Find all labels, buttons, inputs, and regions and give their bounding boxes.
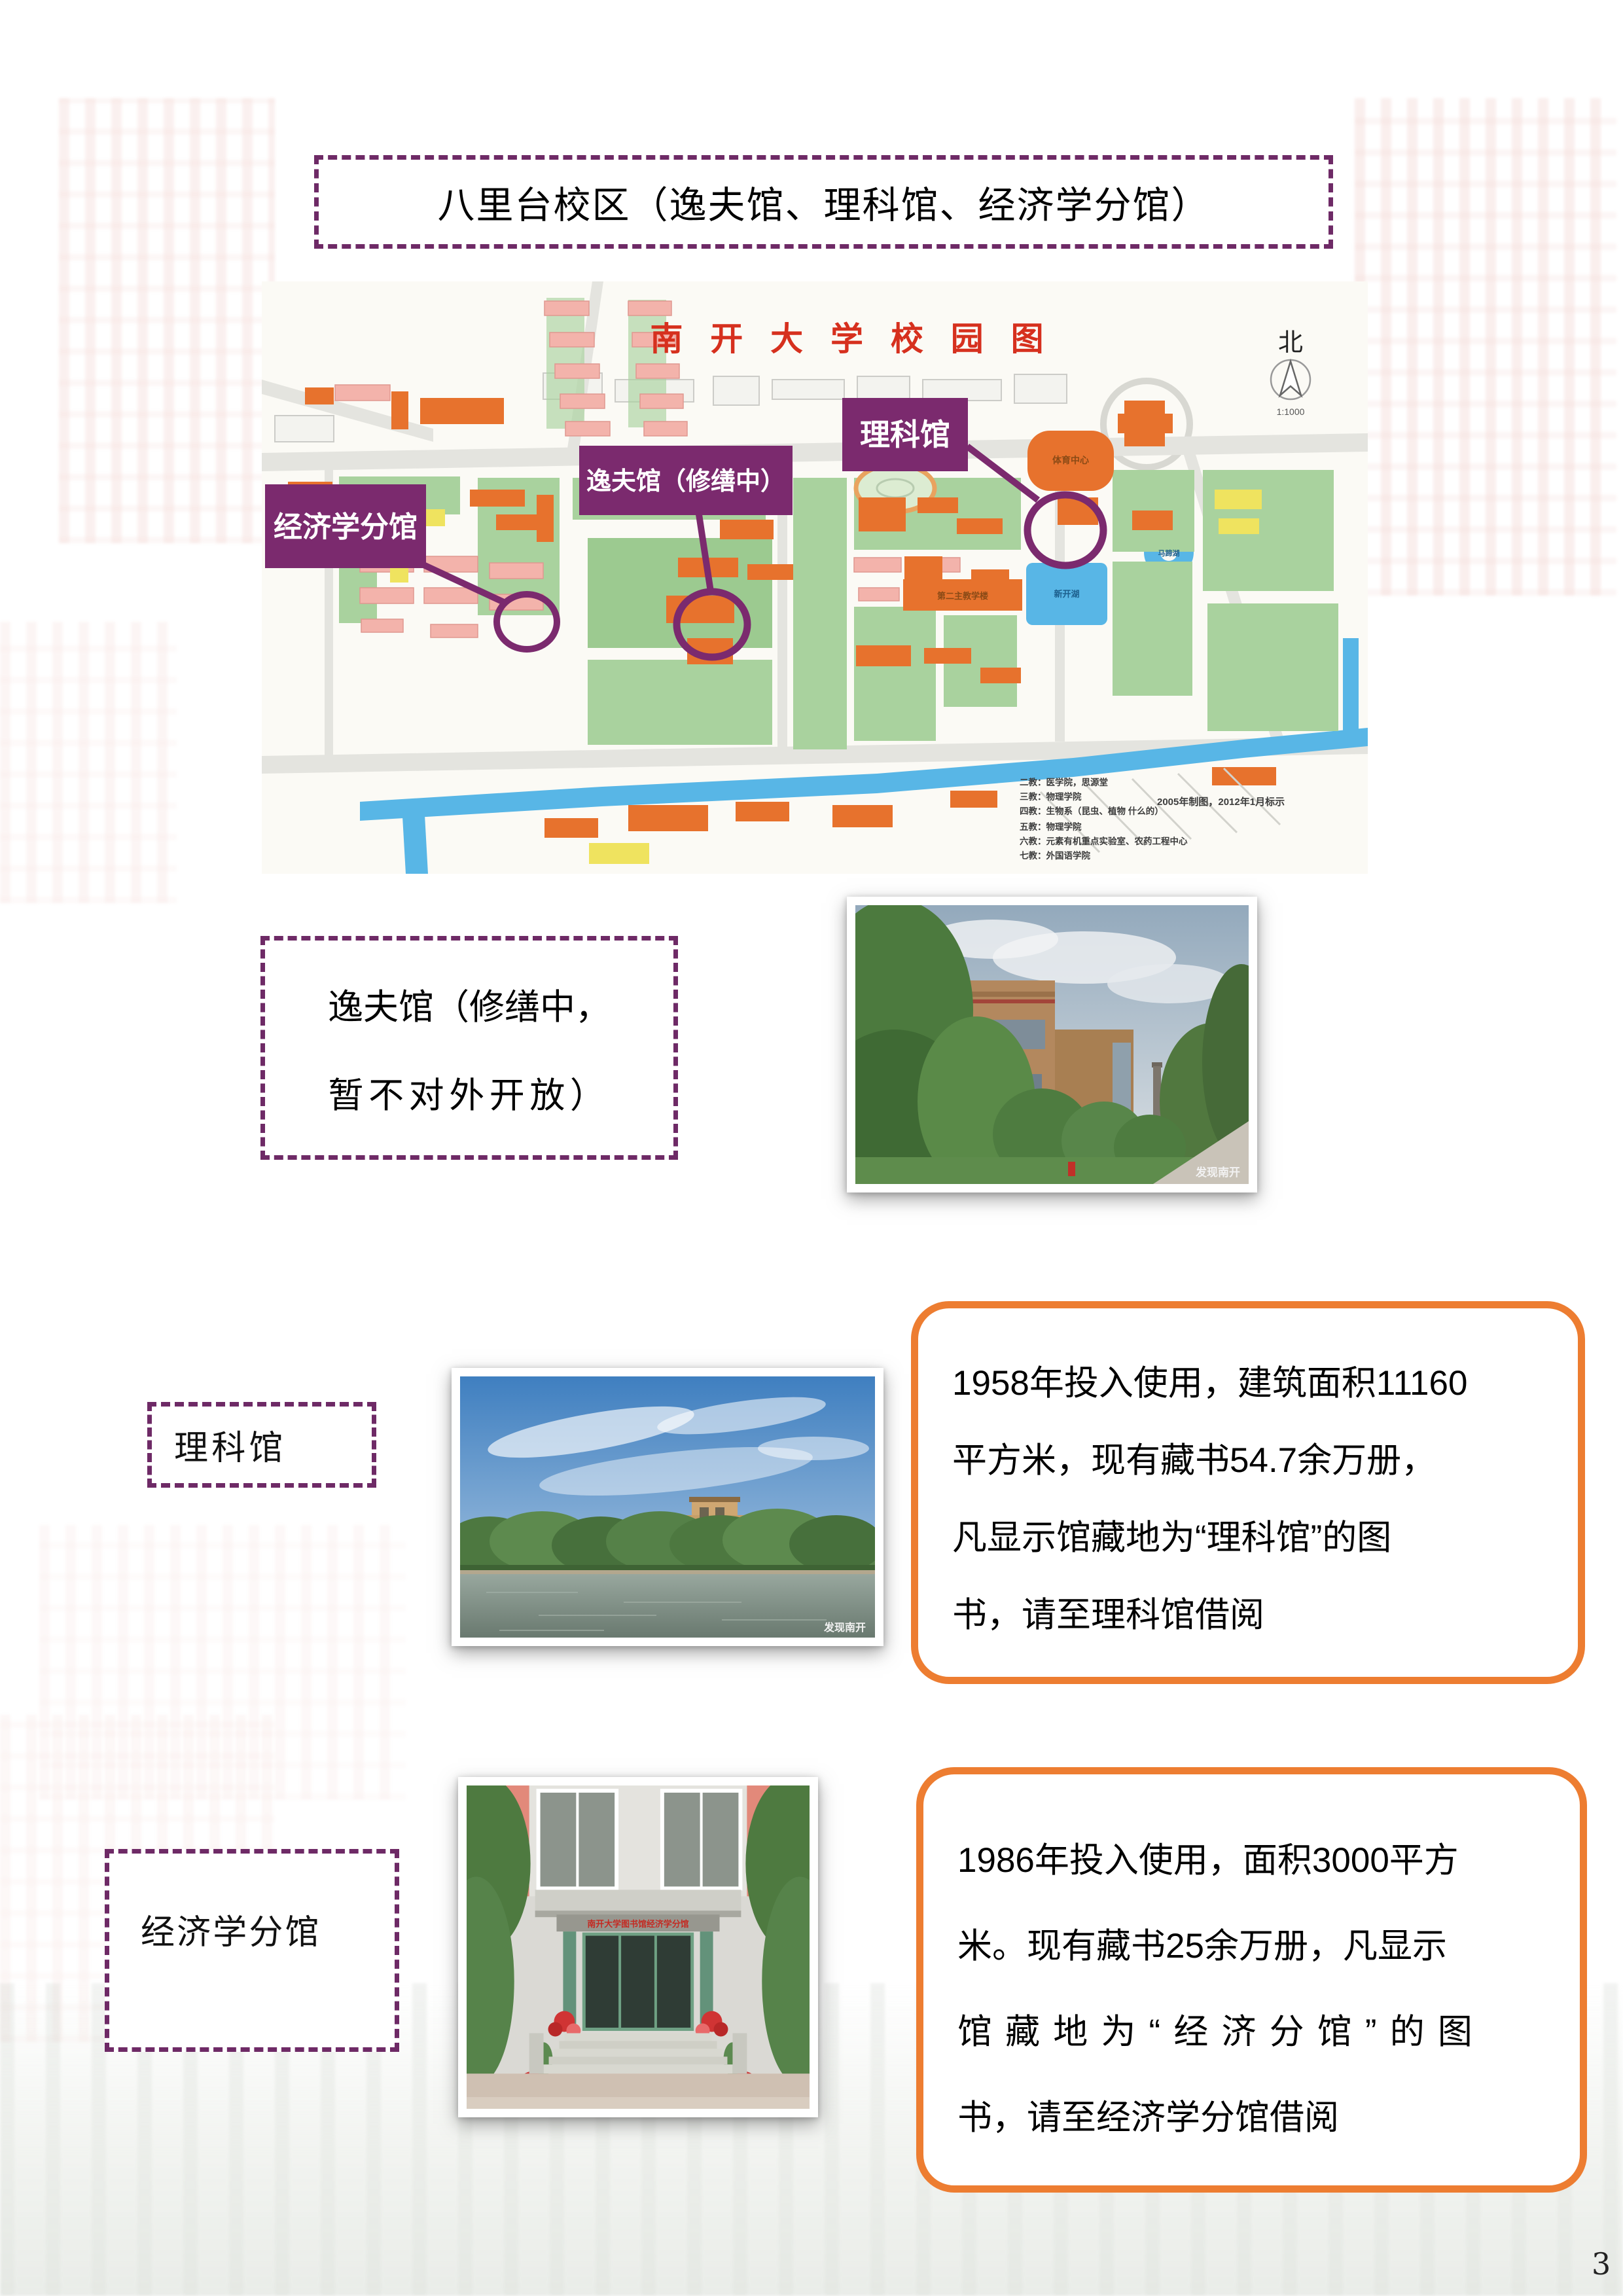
science-bubble-line: 书，请至理科馆借阅 — [952, 1577, 1545, 1654]
economics-photo: 南开大学图书馆经济学分馆 — [458, 1777, 818, 2117]
watermark-sketch-lower-left — [39, 1525, 406, 1800]
science-info-bubble: 1958年投入使用，建筑面积11160 平方米，现有藏书54.7余万册， 凡显示… — [911, 1301, 1585, 1684]
map-label-yifu: 逸夫馆（修缮中） — [586, 468, 785, 495]
science-photo: 发现南开 — [452, 1368, 883, 1646]
page-number: 3 — [1592, 2246, 1611, 2282]
label-xinkai-lake: 新开湖 — [1054, 589, 1079, 599]
map-note: 2005年制图，2012年1月标示 — [1157, 796, 1285, 808]
economics-label: 经济学分馆 — [109, 1854, 395, 1954]
page-title-box: 八里台校区（逸夫馆、理科馆、经济学分馆） — [314, 155, 1333, 249]
economics-bubble-line: 书，请至经济学分馆借阅 — [957, 2075, 1547, 2161]
map-scale: 1:1000 — [1277, 406, 1305, 417]
photo-watermark: 发现南开 — [1195, 1166, 1240, 1179]
science-bubble-line: 1958年投入使用，建筑面积11160 — [952, 1345, 1545, 1422]
yifu-label-box: 逸夫馆（修缮中， 暂不对外开放） — [260, 936, 678, 1160]
legend-line: 三教：物理学院 — [1020, 791, 1082, 802]
legend-line: 六教：元素有机重点实验室、农药工程中心 — [1020, 836, 1188, 846]
economics-label-box: 经济学分馆 — [105, 1849, 399, 2052]
document-page: 八里台校区（逸夫馆、理科馆、经济学分馆） — [0, 0, 1623, 2296]
economics-bubble-line: 米。现有藏书25余万册，凡显示 — [957, 1903, 1547, 1989]
economics-bubble-line: 1986年投入使用，面积3000平方 — [957, 1818, 1547, 1903]
page-title: 八里台校区（逸夫馆、理科馆、经济学分馆） — [438, 175, 1210, 229]
economics-photo-image: 南开大学图书馆经济学分馆 — [467, 1785, 810, 2109]
science-bubble-line: 平方米，现有藏书54.7余万册， — [952, 1422, 1545, 1499]
economics-bubble-line: 馆藏地为“经济分馆”的图 — [957, 1989, 1547, 2075]
label-second-teaching: 第二主教学楼 — [937, 591, 988, 601]
economics-info-bubble: 1986年投入使用，面积3000平方 米。现有藏书25余万册，凡显示 馆藏地为“… — [916, 1767, 1587, 2193]
science-label-box: 理科馆 — [147, 1402, 376, 1488]
svg-text:北: 北 — [1278, 329, 1303, 357]
campus-map: 南 开 大 学 校 园 图 北 1:1000 体育中心 第二主教学楼 新开湖 马… — [262, 281, 1368, 874]
watermark-sketch-top-left — [59, 98, 275, 543]
map-label-science: 理科馆 — [860, 418, 950, 452]
yifu-photo-image: 发现南开 — [855, 905, 1249, 1184]
science-photo-image: 发现南开 — [460, 1376, 875, 1638]
campus-map-image: 南 开 大 学 校 园 图 北 1:1000 体育中心 第二主教学楼 新开湖 马… — [262, 281, 1368, 874]
yifu-label-line1: 逸夫馆（修缮中， — [328, 978, 611, 1030]
yifu-label-line2: 暂不对外开放） — [329, 1066, 611, 1118]
legend-line: 四教：生物系（昆虫、植物 什么的） — [1020, 806, 1164, 816]
door-sign: 南开大学图书馆经济学分馆 — [587, 1919, 688, 1929]
science-bubble-line: 凡显示馆藏地为“理科馆”的图 — [952, 1499, 1545, 1577]
label-sports-center: 体育中心 — [1052, 455, 1089, 465]
photo-watermark: 发现南开 — [823, 1621, 866, 1634]
watermark-sketch-mid-left — [0, 622, 177, 903]
legend-line: 五教：物理学院 — [1020, 821, 1082, 832]
map-label-economics: 经济学分馆 — [274, 511, 418, 543]
science-label: 理科馆 — [152, 1420, 287, 1469]
watermark-sketch-top-right — [1355, 98, 1616, 596]
map-title: 南 开 大 学 校 园 图 — [650, 321, 1052, 357]
yifu-photo: 发现南开 — [847, 897, 1257, 1193]
legend-line: 二教：医学院，思源堂 — [1020, 777, 1108, 787]
label-mati-lake: 马蹄湖 — [1158, 548, 1180, 558]
legend-line: 七教：外国语学院 — [1020, 850, 1090, 861]
